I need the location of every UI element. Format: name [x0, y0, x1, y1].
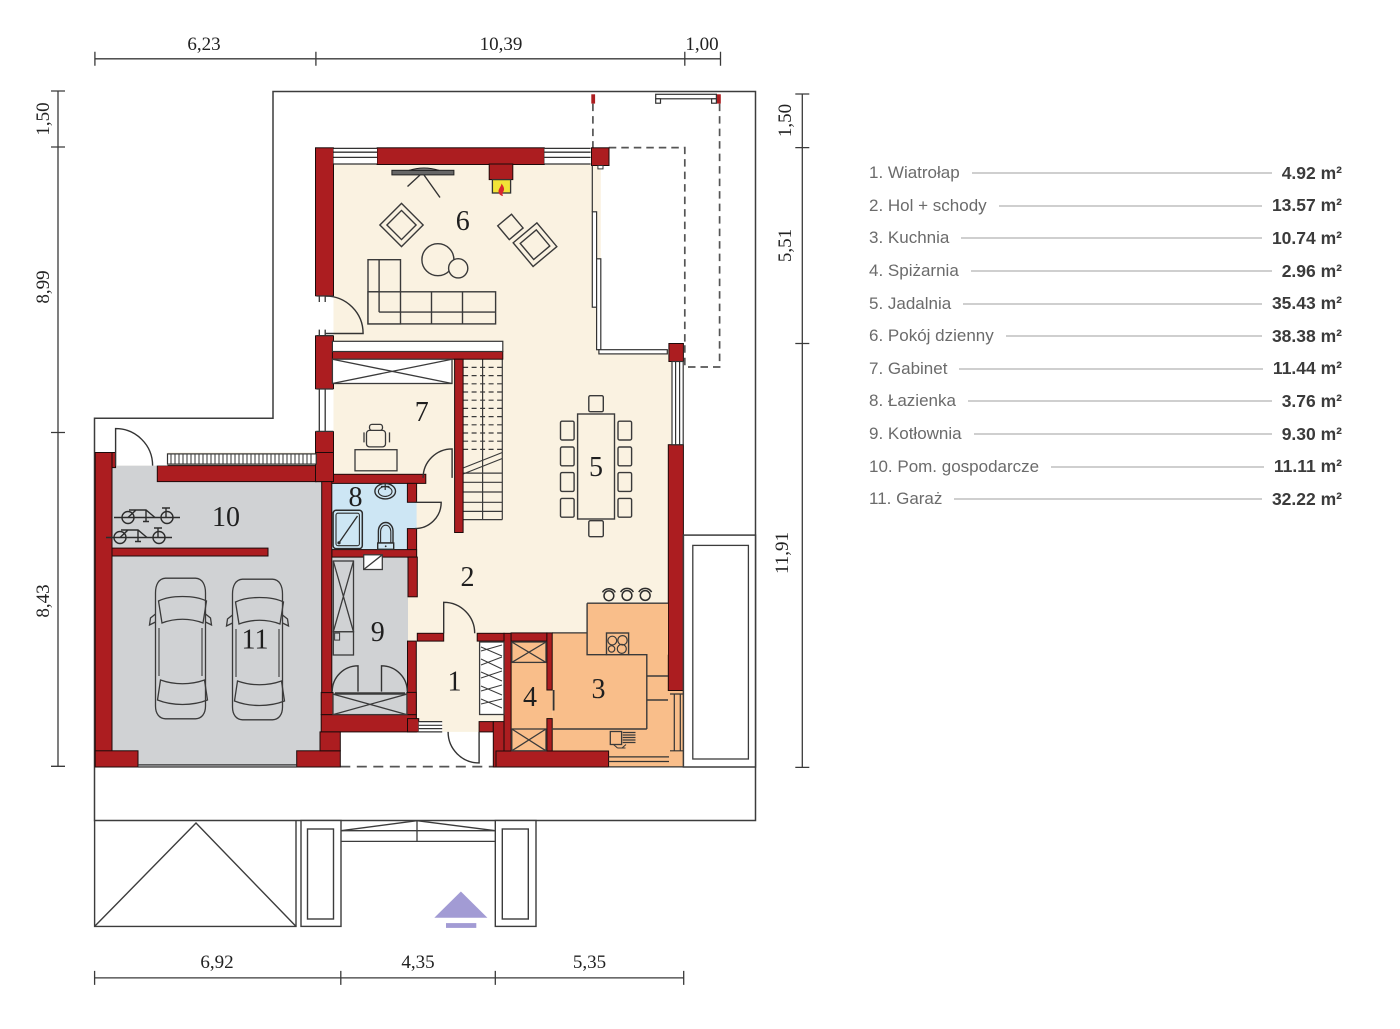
svg-text:5,51: 5,51 — [775, 229, 796, 262]
svg-text:1,00: 1,00 — [685, 34, 718, 55]
svg-text:8: 8 — [349, 482, 363, 513]
svg-text:6,23: 6,23 — [187, 34, 220, 55]
svg-text:8,99: 8,99 — [33, 270, 54, 303]
svg-text:11: 11 — [242, 625, 269, 656]
svg-text:10,39: 10,39 — [480, 34, 523, 55]
svg-text:1: 1 — [448, 667, 462, 698]
svg-text:5,35: 5,35 — [573, 952, 606, 973]
svg-text:6: 6 — [456, 206, 470, 237]
svg-text:11,91: 11,91 — [772, 532, 793, 574]
svg-text:10: 10 — [212, 502, 240, 533]
svg-text:8,43: 8,43 — [33, 584, 54, 617]
svg-text:7: 7 — [415, 397, 429, 428]
svg-text:3: 3 — [592, 674, 606, 705]
svg-text:1,50: 1,50 — [33, 102, 54, 135]
svg-text:2: 2 — [461, 562, 475, 593]
svg-text:5: 5 — [589, 452, 603, 483]
svg-text:1,50: 1,50 — [775, 104, 796, 137]
svg-text:4,35: 4,35 — [401, 952, 434, 973]
svg-text:6,92: 6,92 — [200, 952, 233, 973]
svg-text:9: 9 — [371, 617, 385, 648]
svg-text:4: 4 — [523, 682, 537, 713]
